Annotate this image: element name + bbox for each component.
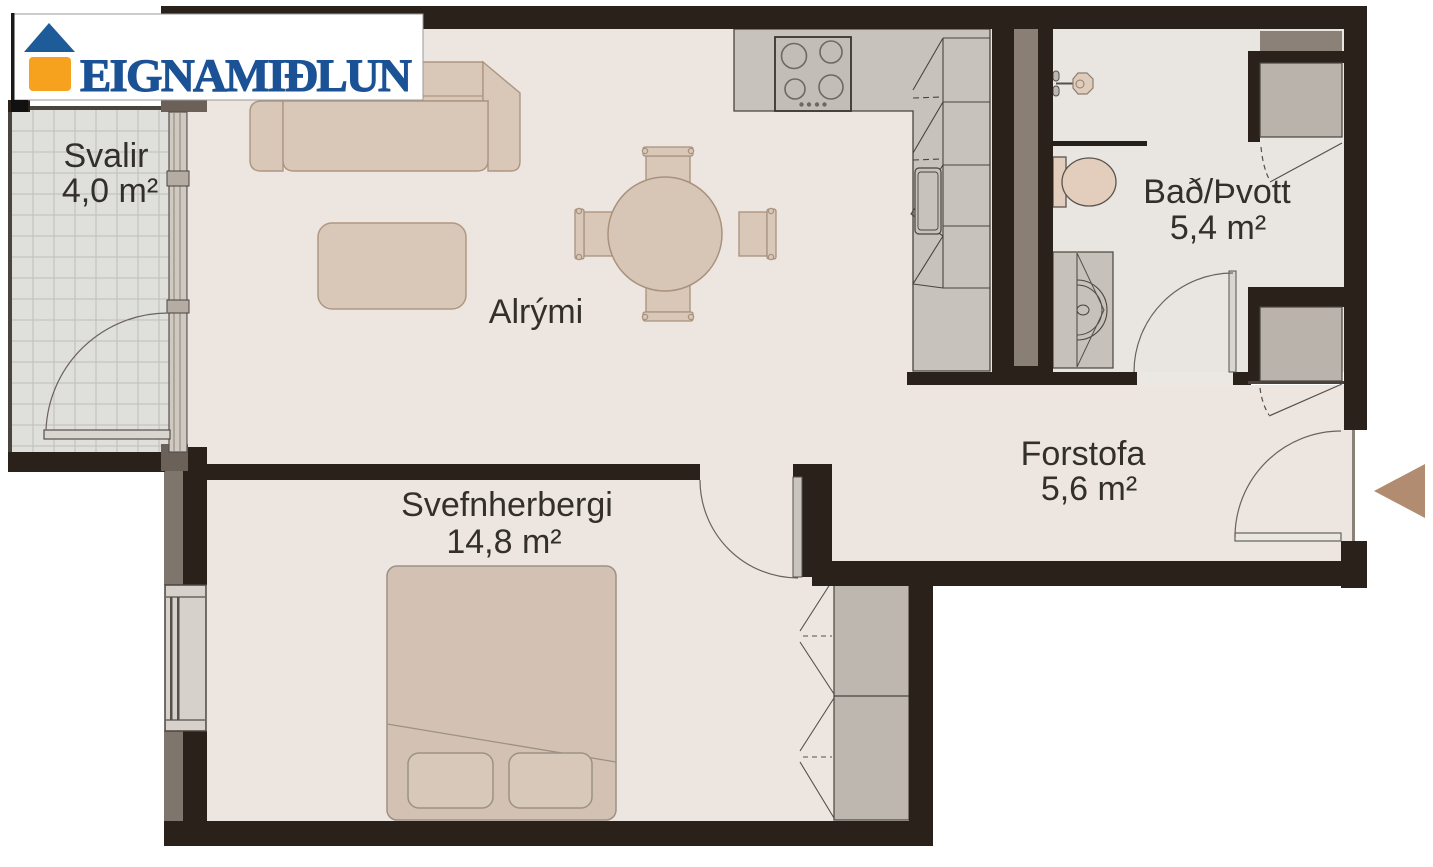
- svg-text:Svefnherbergi: Svefnherbergi: [401, 486, 613, 524]
- svg-text:Svalir: Svalir: [63, 137, 148, 175]
- svg-text:14,8 m²: 14,8 m²: [446, 523, 561, 561]
- svg-text:5,6 m²: 5,6 m²: [1041, 470, 1137, 508]
- svg-text:EIGNAMIÐLUN: EIGNAMIÐLUN: [80, 50, 412, 102]
- svg-text:Bað/Þvott: Bað/Þvott: [1143, 173, 1291, 211]
- svg-text:4,0 m²: 4,0 m²: [62, 172, 158, 210]
- svg-text:5,4 m²: 5,4 m²: [1170, 209, 1266, 247]
- svg-text:Forstofa: Forstofa: [1021, 435, 1146, 473]
- svg-text:Alrými: Alrými: [489, 293, 583, 331]
